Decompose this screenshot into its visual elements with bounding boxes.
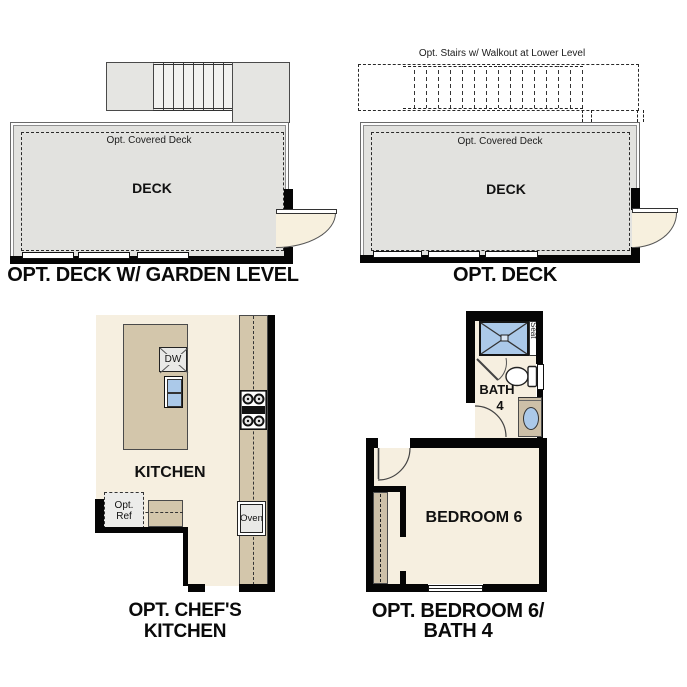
optional-refrigerator: Opt. Ref <box>104 492 144 529</box>
opt-stairs-treads <box>403 66 583 109</box>
garden-deck-railing-3 <box>137 252 189 259</box>
garden-stair-upper-landing <box>232 62 290 123</box>
opt-deck-railing-2 <box>428 251 480 258</box>
kitchen-right-wall <box>268 315 275 592</box>
kitchen-sink-bowl-top <box>167 379 182 393</box>
bedroom6-bottom-wall-left <box>366 584 428 592</box>
kitchen-bottom-wall-left <box>95 527 188 533</box>
bath4-right-wall-upper <box>536 311 543 364</box>
garden-deck-railing-1 <box>22 252 74 259</box>
oven-label: Oven <box>240 513 263 524</box>
bedroom6-window <box>428 585 483 592</box>
bedroom6-door-swing <box>377 447 411 481</box>
opt-deck-railing-3 <box>485 251 538 258</box>
bath4-vanity-sink <box>523 407 539 430</box>
opt-deck-door-leaf <box>632 208 678 213</box>
shower-door-swing <box>475 355 510 382</box>
garden-deck-right-wall-lower <box>284 247 293 264</box>
garden-stair-landing <box>106 62 154 111</box>
opt-stairs-connector-2 <box>591 110 592 122</box>
kitchen-bottom-wall-corridor <box>188 584 205 592</box>
opt-deck-right-wall-lower <box>631 247 640 263</box>
floorplan-options-sheet: Opt. Covered Deck DECK OPT. DECK W/ GARD… <box>0 0 687 687</box>
garden-deck-right-wall-upper <box>284 189 293 210</box>
opt-covered-deck-label: Opt. Covered Deck <box>410 136 590 147</box>
kitchen-sink <box>164 376 183 408</box>
dishwasher-label: DW <box>164 354 183 365</box>
garden-deck-door-leaf <box>276 209 337 214</box>
fridge-label-line2: Ref <box>116 511 132 522</box>
fridge-label-line1: Opt. <box>115 500 134 511</box>
bath4-right-opening <box>537 364 544 390</box>
bath4-top-wall <box>466 311 543 321</box>
closet-right-wall-lower <box>400 571 406 585</box>
bath4-vanity <box>518 397 542 437</box>
opt-stairs-connector-4 <box>643 110 644 122</box>
opt-deck-title: OPT. DECK <box>405 264 605 287</box>
bedroom6-room-label: BEDROOM 6 <box>394 509 554 527</box>
bedroom6-bottom-wall-right <box>483 584 547 592</box>
kitchen-sink-bowl-bottom <box>167 393 182 407</box>
dishwasher: DW <box>159 347 187 372</box>
kitchen-vertical-wall <box>183 533 188 586</box>
chefs-kitchen-title-line2: KITCHEN <box>60 621 310 643</box>
kitchen-counter <box>148 500 183 527</box>
bedroom6-title-line2: BATH 4 <box>333 620 583 643</box>
chefs-kitchen-title-line1: OPT. CHEF'S <box>60 600 310 622</box>
cooktop <box>240 390 267 430</box>
garden-deck-title: OPT. DECK W/ GARDEN LEVEL <box>3 264 303 287</box>
garden-deck-door-swing <box>276 213 336 248</box>
bath4-entry-door-swing <box>474 404 508 438</box>
kitchen-cabinet-centerline <box>253 316 254 590</box>
opt-deck-railing-1 <box>373 251 422 258</box>
kitchen-floor-corridor <box>188 528 239 586</box>
opt-deck-door-swing <box>632 213 677 248</box>
oven: Oven <box>237 501 266 536</box>
garden-staircase <box>153 62 233 111</box>
closet-rod-dashline <box>380 494 381 582</box>
garden-covered-deck-label: Opt. Covered Deck <box>59 135 239 146</box>
shower <box>479 321 529 356</box>
opt-stairs-note: Opt. Stairs w/ Walkout at Lower Level <box>352 48 652 59</box>
garden-deck-railing-2 <box>78 252 130 259</box>
opt-stairs-connector-3 <box>637 110 638 122</box>
garden-deck-room-label: DECK <box>62 180 242 196</box>
bath4-label-line1: BATH <box>467 382 527 397</box>
kitchen-cabinet-bottom-wall <box>239 584 275 592</box>
opt-deck-room-label: DECK <box>416 181 596 197</box>
bedroom6-top-wall-right <box>410 438 547 448</box>
kitchen-room-label: KITCHEN <box>95 464 245 482</box>
opt-deck-right-wall-upper <box>631 188 640 210</box>
opt-stairs-connector-1 <box>582 110 583 122</box>
kitchen-left-wall <box>95 499 104 529</box>
